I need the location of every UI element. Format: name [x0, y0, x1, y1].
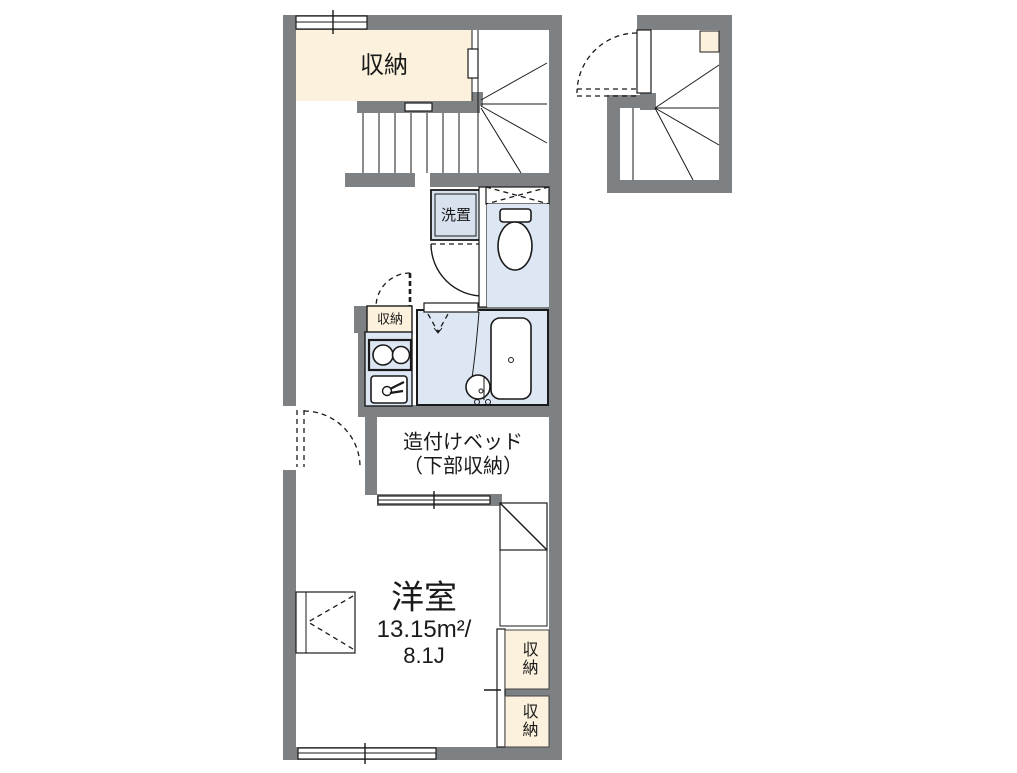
closet-upper-label: 収納 — [518, 641, 537, 677]
hall-storage-label: 収納 — [377, 311, 403, 326]
wall-under-bath — [358, 405, 562, 417]
room-name-label: 洋室 — [391, 579, 457, 618]
closet-lower-label: 収納 — [518, 703, 537, 739]
wall-beside-hall-storage — [354, 306, 367, 333]
refrigerator-space-icon — [500, 503, 547, 626]
entrance-storage-box — [700, 31, 719, 52]
room-area-sqm-label: 13.15m²/ — [377, 616, 472, 644]
wall-stair-bottom-right — [430, 173, 562, 187]
toilet-room — [487, 204, 549, 307]
bed-label-line1: 造付けベッド — [403, 431, 523, 455]
floor-plan-drawing — [0, 0, 1017, 773]
storage-top-label: 収納 — [360, 52, 408, 80]
closets-bottom — [484, 629, 549, 747]
wall-closet-divider — [498, 689, 549, 696]
washer-place-label: 洗置 — [441, 207, 471, 225]
built-in-bed-label: 造付けベッド （下部収納） — [403, 431, 523, 478]
toilet-icon — [498, 209, 532, 270]
window-bed-icon — [378, 491, 490, 509]
washroom-toilet-partition — [479, 187, 487, 307]
wall-stair-bottom-left — [345, 173, 415, 187]
stair-landing-marker — [405, 103, 432, 111]
hatched-panel-icon — [486, 187, 549, 204]
counter-space — [500, 550, 547, 626]
hall-door-swing-icon — [376, 273, 410, 307]
bathroom-door-opening — [424, 303, 478, 312]
bathroom — [417, 303, 548, 405]
wall-right — [549, 15, 562, 760]
storage-door-opening — [468, 49, 478, 78]
washroom-door-swing-icon — [431, 244, 483, 296]
window-bottom-icon — [298, 743, 436, 764]
kitchen-unit — [365, 332, 412, 406]
entrance-door-swing-icon — [577, 30, 651, 96]
chevron-panel-icon — [296, 592, 355, 653]
closet-sliding-door — [497, 629, 505, 747]
bed-label-line2: （下部収納） — [403, 455, 523, 479]
wall-left — [283, 15, 296, 760]
kitchen-sink-icon — [371, 376, 407, 403]
wall-bed-left — [365, 412, 377, 495]
bathtub-icon — [491, 318, 531, 399]
room-area-tatami-label: 8.1J — [403, 643, 445, 669]
floor-plan: 収納 洗置 収納 造付けベッド （下部収納） 洋室 13.15m²/ 8.1J … — [0, 0, 1017, 773]
entry-door-swing-icon — [281, 406, 360, 470]
wall-kitchen-left — [358, 332, 365, 408]
